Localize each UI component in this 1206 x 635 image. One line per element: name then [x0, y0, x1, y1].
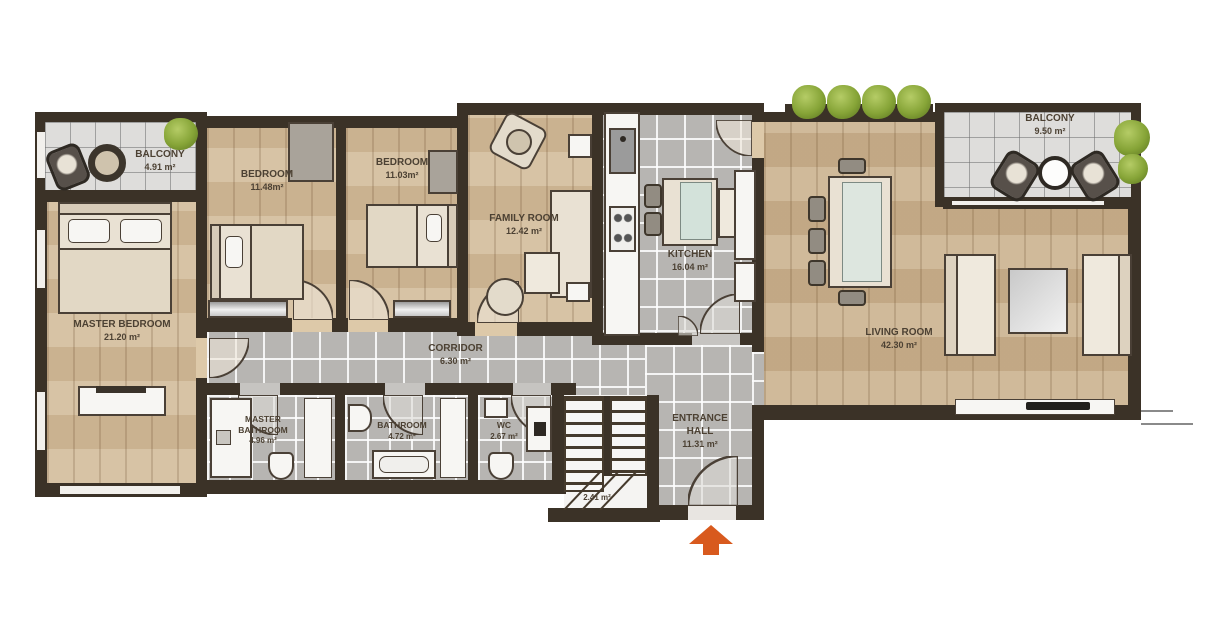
- bed-headboard: [212, 226, 221, 298]
- wall: [35, 190, 207, 202]
- room-name: CORRIDOR: [428, 343, 482, 354]
- room-area: 42.30 m²: [881, 340, 917, 350]
- living-room-label: LIVING ROOM 42.30 m²: [843, 326, 955, 352]
- window-sill: [208, 300, 288, 318]
- family-room-label: FAMILY ROOM 12.42 m²: [468, 212, 580, 238]
- tv: [1026, 402, 1090, 410]
- kitchen-chair: [644, 184, 662, 208]
- door-opening: [752, 122, 764, 158]
- dining-chair: [808, 196, 826, 222]
- wall: [935, 103, 1140, 112]
- bedroom-1-label: BEDROOM 11.48m²: [212, 168, 322, 194]
- room-area: 16.04 m²: [672, 262, 708, 272]
- room-name: MASTER BATHROOM: [238, 414, 287, 435]
- door-opening: [240, 383, 280, 395]
- wall: [468, 395, 478, 483]
- kitchen-sink: [609, 128, 636, 174]
- kitchen-table: [662, 178, 718, 246]
- pillow: [68, 219, 110, 243]
- balcony-right-label: BALCONY 9.50 m²: [1002, 112, 1098, 138]
- room-area: 21.20 m²: [104, 332, 140, 342]
- staircase-label: 2.41 m²: [566, 492, 628, 503]
- plant-icon: [1118, 154, 1148, 184]
- bathtub: [372, 450, 436, 479]
- kitchen-label: KITCHEN 16.04 m²: [642, 248, 738, 274]
- door-opening: [475, 322, 517, 336]
- room-area: 2.67 m²: [490, 432, 518, 441]
- room-area: 2.41 m²: [583, 493, 611, 502]
- bed-headboard: [447, 206, 456, 266]
- master-bathroom-label: MASTER BATHROOM 4.96 m²: [228, 414, 298, 446]
- room-area: 6.30 m²: [440, 356, 471, 366]
- master-bedroom-label: MASTER BEDROOM 21.20 m²: [52, 318, 192, 344]
- room-name: WC: [497, 420, 511, 430]
- tv-on-dresser: [96, 386, 146, 393]
- entrance-door-arc: [688, 456, 738, 506]
- room-name: LIVING ROOM: [865, 327, 932, 338]
- window-sill: [393, 300, 451, 318]
- bathroom-label: BATHROOM 4.72 m²: [358, 420, 446, 442]
- door-leaf: [304, 398, 332, 478]
- door-opening: [513, 383, 551, 395]
- room-name: BALCONY: [1025, 113, 1074, 124]
- room-name: KITCHEN: [668, 249, 712, 260]
- kitchen-chair: [644, 212, 662, 236]
- cabinet: [568, 134, 592, 158]
- dining-table: [828, 176, 892, 288]
- table-top: [842, 182, 882, 282]
- bench: [524, 252, 560, 294]
- room-name: BEDROOM: [376, 157, 428, 168]
- door-opening: [292, 318, 332, 332]
- pillow: [426, 214, 442, 242]
- window: [37, 230, 45, 288]
- door-arc: [349, 280, 389, 320]
- entrance-arrow-stem: [703, 543, 719, 555]
- wall: [548, 508, 660, 522]
- door-opening: [348, 318, 388, 332]
- double-bed: [58, 202, 172, 314]
- room-area: 11.03m²: [385, 170, 418, 180]
- wall: [196, 480, 566, 494]
- wall: [647, 395, 659, 508]
- entrance-hall-label: ENTRANCE HALL 11.31 m²: [660, 412, 740, 451]
- side-table: [566, 282, 590, 302]
- bed-blanket: [368, 206, 418, 266]
- room-name: BALCONY: [135, 149, 184, 160]
- plant-icon: [1114, 120, 1150, 156]
- room-name: MASTER BEDROOM: [73, 319, 170, 330]
- dining-chair: [838, 158, 866, 174]
- room-name: BEDROOM: [241, 169, 293, 180]
- bed-blanket: [250, 226, 302, 298]
- wall: [935, 103, 944, 207]
- boundary-line: [1141, 410, 1173, 412]
- room-area: 11.48m²: [250, 182, 283, 192]
- door-opening: [692, 333, 740, 345]
- door-arc: [678, 316, 698, 336]
- floor-plan: BALCONY 4.91 m² MASTER BEDROOM 21.20 m² …: [0, 0, 1206, 635]
- pillow: [225, 236, 243, 268]
- window: [37, 392, 45, 450]
- bedroom-2-label: BEDROOM 11.03m²: [348, 156, 456, 182]
- wc-label: WC 2.67 m²: [478, 420, 530, 442]
- table-top: [680, 182, 712, 240]
- balcony-table: [1038, 156, 1072, 190]
- room-area: 9.50 m²: [1034, 126, 1065, 136]
- fridge: [734, 170, 756, 260]
- room-area: 4.72 m²: [388, 432, 416, 441]
- door-opening: [196, 338, 207, 378]
- window: [37, 132, 45, 178]
- sofa: [1082, 254, 1132, 356]
- wall: [552, 383, 564, 483]
- bed-headboard: [60, 204, 170, 215]
- single-bed: [366, 204, 458, 268]
- bathtub-inner: [379, 456, 429, 473]
- stove: [609, 206, 636, 252]
- window: [952, 201, 1104, 205]
- wall: [457, 103, 468, 328]
- stair-flight: [610, 396, 647, 476]
- door-arc: [716, 120, 752, 156]
- dining-chair: [808, 260, 826, 286]
- stair-break-lines: [562, 470, 648, 510]
- room-area: 4.96 m²: [249, 436, 277, 445]
- wall: [336, 116, 346, 328]
- wall: [752, 420, 764, 520]
- room-name: ENTRANCE HALL: [672, 413, 728, 437]
- door-opening: [385, 383, 425, 395]
- sofa-back: [1118, 256, 1130, 354]
- door-arc: [209, 338, 249, 378]
- entrance-arrow-icon: [689, 525, 733, 544]
- coffee-table: [1008, 268, 1068, 334]
- room-area: 11.31 m²: [682, 439, 718, 449]
- wall: [592, 103, 603, 345]
- room-name: FAMILY ROOM: [489, 213, 558, 224]
- armchair-cushion: [506, 129, 532, 155]
- passage-floor: [752, 352, 764, 405]
- wall: [196, 112, 207, 338]
- dining-chair: [838, 290, 866, 306]
- door-opening: [688, 505, 736, 520]
- room-name: BATHROOM: [377, 420, 426, 430]
- dining-chair: [808, 228, 826, 254]
- toilet: [488, 452, 514, 480]
- washbasin: [484, 398, 508, 418]
- room-area: 12.42 m²: [506, 226, 542, 236]
- wall: [335, 395, 345, 483]
- ottoman: [486, 278, 524, 316]
- toilet: [268, 452, 294, 480]
- corridor-label: CORRIDOR 6.30 m²: [408, 342, 503, 368]
- pillow: [120, 219, 162, 243]
- room-area: 4.91 m²: [144, 162, 175, 172]
- balcony-left-label: BALCONY 4.91 m²: [110, 148, 210, 174]
- window: [60, 486, 180, 494]
- boundary-line: [1141, 423, 1193, 425]
- single-bed: [210, 224, 304, 300]
- bed-blanket: [60, 248, 170, 312]
- panel: [534, 422, 546, 436]
- faucet: [620, 136, 626, 142]
